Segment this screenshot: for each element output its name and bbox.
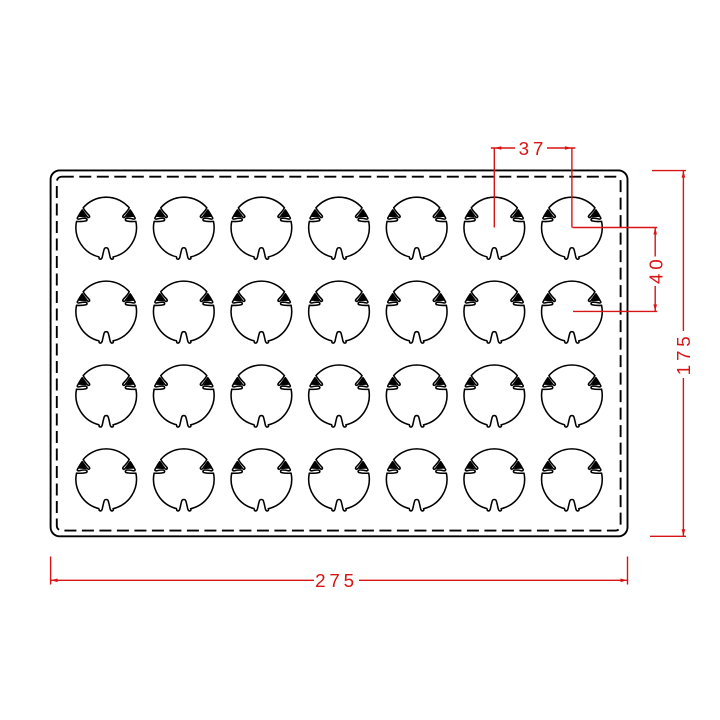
svg-text:40: 40 — [645, 256, 666, 285]
svg-text:175: 175 — [673, 333, 694, 376]
svg-text:275: 275 — [315, 570, 358, 591]
svg-text:37: 37 — [519, 138, 548, 159]
